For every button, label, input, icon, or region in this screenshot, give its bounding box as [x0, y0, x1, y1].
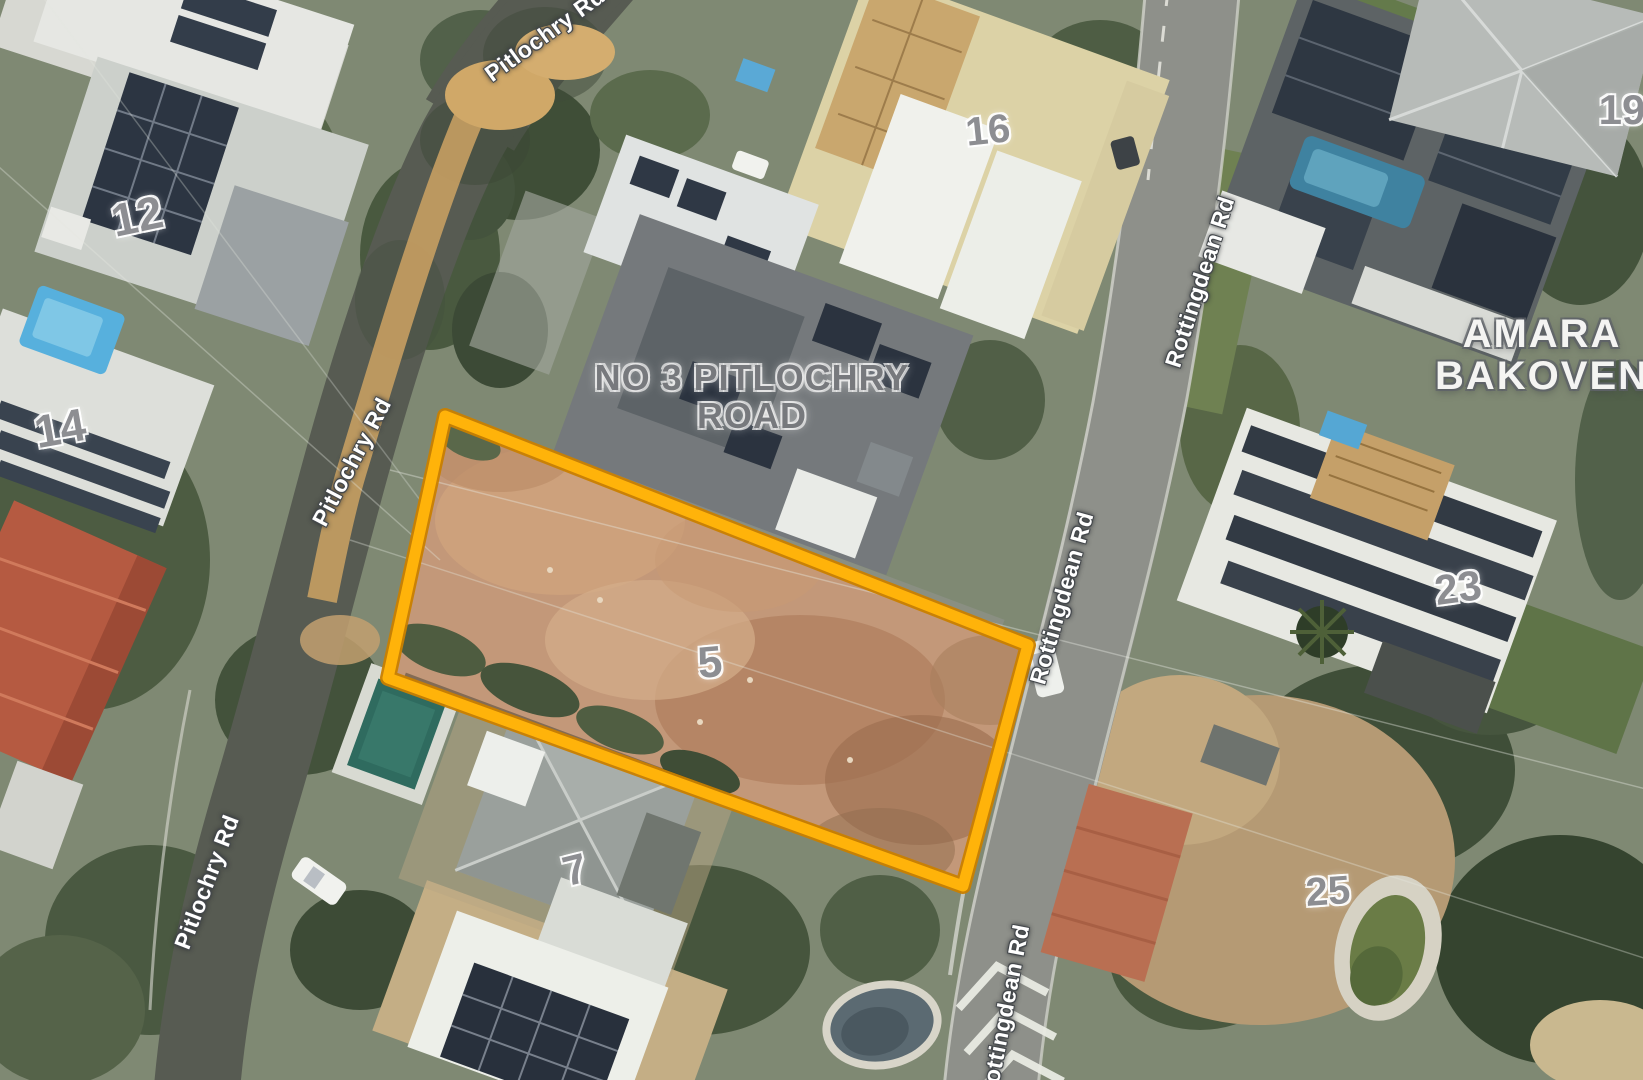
palm-tree [1290, 600, 1354, 664]
satellite-map[interactable]: Pitlochry Rd Pitlochry Rd Pitlochry Rd R… [0, 0, 1643, 1080]
satellite-imagery [0, 0, 1643, 1080]
